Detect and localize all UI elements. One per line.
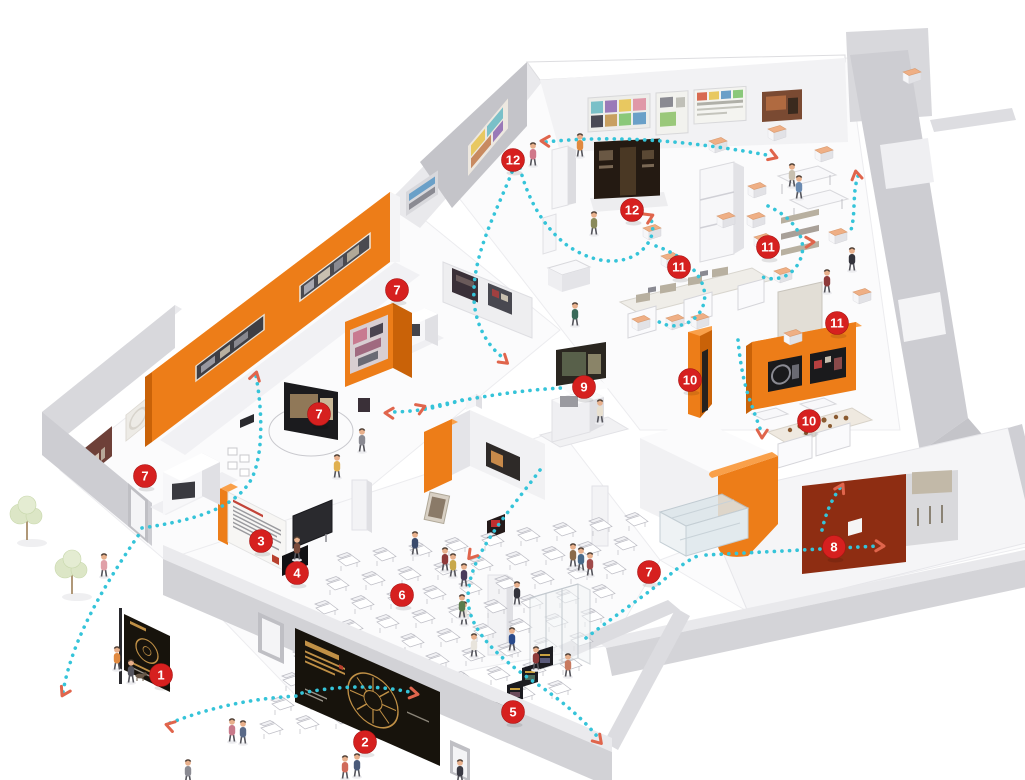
station-number: 11	[672, 260, 686, 275]
visitor-figure	[227, 719, 237, 744]
artwork-warm	[762, 89, 802, 122]
station-number: 1	[157, 668, 164, 683]
tree-icon	[55, 550, 92, 601]
chair	[260, 721, 283, 740]
visitor-figure	[340, 756, 350, 780]
station-number: 8	[830, 540, 837, 555]
station-number: 12	[625, 203, 639, 218]
direction-arrow-icon	[757, 430, 767, 438]
station-number: 11	[830, 316, 844, 331]
visitor-figure	[238, 721, 248, 746]
station-number: 7	[141, 469, 148, 484]
exhibition-floorplan: 12345677778910101111111212	[0, 0, 1025, 780]
station-number: 7	[393, 283, 400, 298]
station-number: 2	[361, 735, 368, 750]
chair	[487, 667, 510, 686]
artwork-grid	[588, 94, 650, 132]
small-frame	[358, 398, 370, 412]
station-number: 5	[509, 705, 516, 720]
station-number: 12	[506, 153, 520, 168]
trees-layer	[10, 496, 92, 601]
station-number: 10	[802, 414, 816, 429]
chair	[296, 716, 319, 735]
station-number: 9	[580, 380, 587, 395]
station-number: 7	[645, 565, 652, 580]
station-number: 3	[257, 534, 264, 549]
station-number: 10	[683, 373, 697, 388]
artwork-photo	[656, 91, 688, 135]
chair	[548, 681, 571, 700]
chair	[271, 697, 294, 716]
partition-slab	[552, 146, 568, 209]
display-rack	[700, 162, 734, 262]
partition-slab-side	[568, 146, 576, 205]
tree-icon	[10, 496, 47, 547]
pillar	[592, 486, 608, 546]
cube-room-orange-panel	[424, 419, 452, 493]
visitor-figure	[183, 760, 193, 780]
visitor-figure	[352, 754, 362, 779]
station-number: 7	[315, 407, 322, 422]
artwork-tiles	[694, 86, 746, 124]
station-number: 4	[293, 566, 301, 581]
visitor-figure	[99, 554, 109, 579]
station-number: 11	[761, 240, 775, 255]
floorplan-canvas: 12345677778910101111111212	[0, 0, 1025, 780]
station-number: 6	[398, 588, 405, 603]
pillar	[352, 480, 367, 530]
